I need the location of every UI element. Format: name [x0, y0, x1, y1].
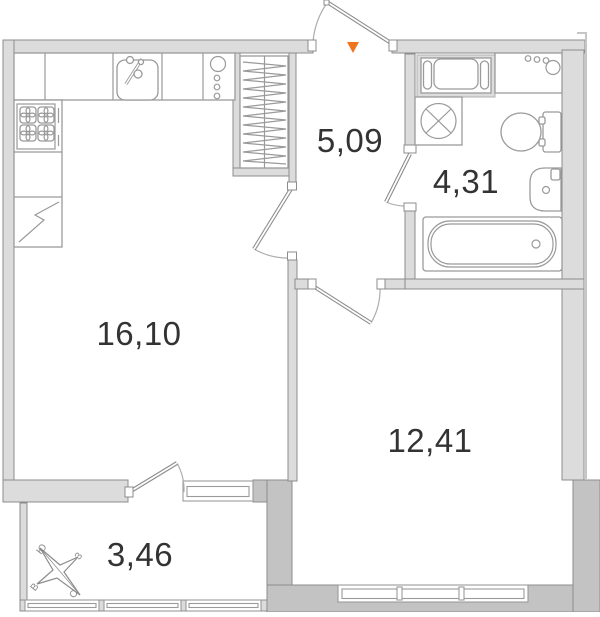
wall-bottom-living	[3, 480, 128, 502]
hallway-area-label: 5,09	[317, 122, 383, 159]
bathroom-door	[386, 145, 416, 211]
kitchen-sink-icon	[117, 57, 158, 101]
kitchen-door	[254, 182, 297, 260]
wall-dark-balcony-right	[267, 480, 292, 587]
kitchen-fixtures	[14, 53, 235, 247]
balcony-area-label: 3,46	[107, 536, 173, 573]
bedroom-area-label: 12,41	[387, 422, 472, 459]
wall-left	[3, 40, 14, 502]
balcony-glazing	[25, 600, 261, 611]
kitchen-living-area-label: 16,10	[96, 315, 181, 352]
wardrobe-bottom-wall	[233, 168, 296, 176]
floor-plan-canvas: 16,10 5,09 4,31 12,41 3,46 Ю З В С	[0, 0, 600, 612]
wardrobe-icon	[240, 56, 288, 168]
hallway-left-wall	[289, 53, 296, 183]
compass-rose-icon: Ю З В С	[29, 542, 86, 601]
compass-north-label: С	[67, 588, 80, 600]
bathroom-area-label: 4,31	[433, 163, 499, 200]
bedroom-window	[338, 585, 528, 602]
wall-dark-right-corner	[573, 480, 600, 612]
room-labels: 16,10 5,09 4,31 12,41 3,46	[96, 122, 499, 573]
bathroom-left-wall-lower	[405, 206, 415, 281]
balcony-left-wall	[20, 503, 27, 600]
washing-machine-icon	[415, 97, 462, 145]
bathtub-icon	[423, 217, 562, 271]
bathroom-fixtures	[415, 53, 562, 271]
vanity-counter-icon	[495, 53, 562, 93]
wall-top-right	[392, 40, 585, 53]
entrance-arrow-icon	[347, 42, 359, 53]
bedroom-door	[308, 279, 385, 323]
living-room-window	[183, 481, 253, 501]
living-bedroom-partition	[288, 260, 297, 481]
wall-top-left	[3, 40, 313, 53]
bathroom-left-wall-upper	[405, 54, 415, 152]
wall-right	[562, 50, 584, 480]
washbasin-icon	[530, 168, 561, 211]
laundry-appliance-icon	[417, 55, 495, 97]
toilet-icon	[501, 112, 561, 152]
bathroom-bottom-wall	[405, 279, 584, 289]
floor-plan: 16,10 5,09 4,31 12,41 3,46 Ю З В С	[0, 0, 600, 612]
balcony-door	[125, 463, 184, 497]
